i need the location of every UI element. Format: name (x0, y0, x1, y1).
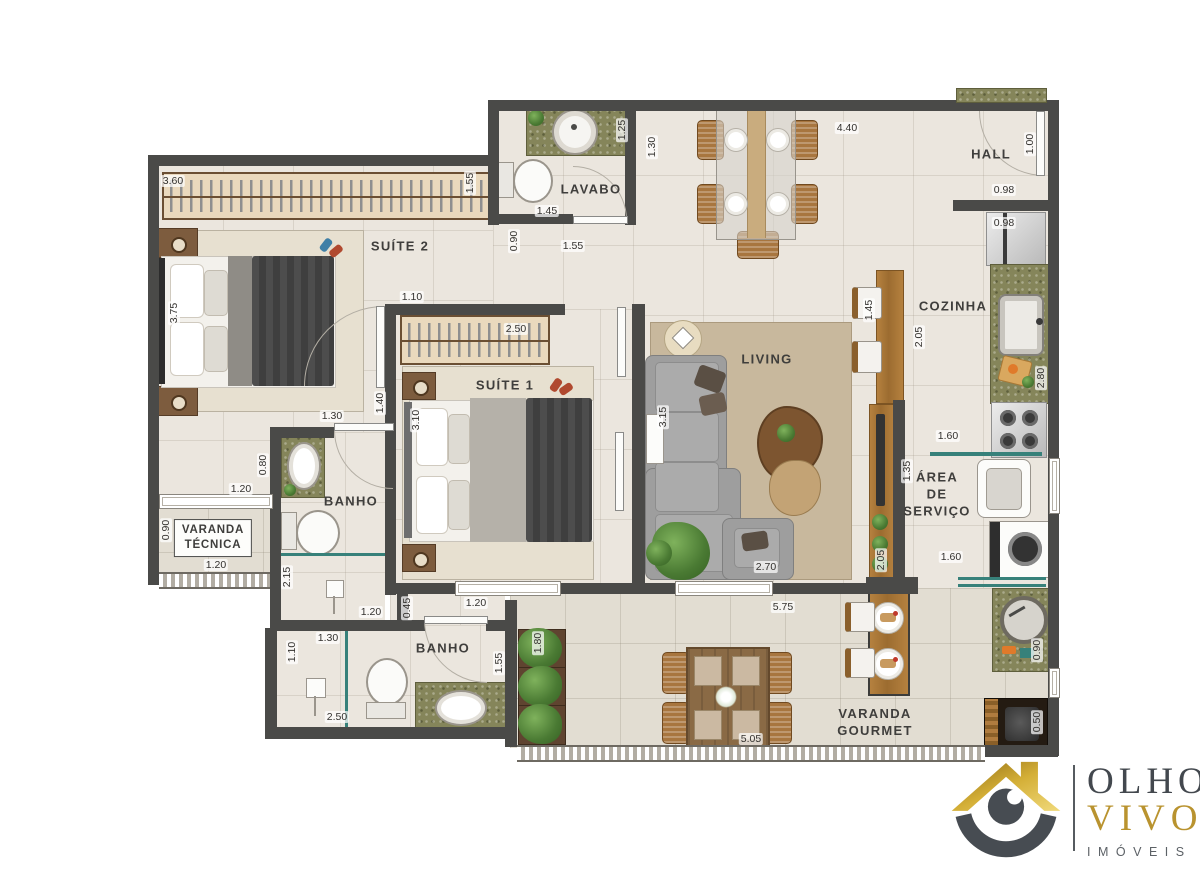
dimension-label: 0.98 (992, 184, 1016, 196)
dimension-label: 0.45 (401, 596, 413, 620)
dimension-label: 1.60 (936, 430, 960, 442)
dimension-label: 3.10 (410, 408, 422, 432)
dimension-label: 1.55 (561, 240, 585, 252)
dimension-label: 1.10 (400, 291, 424, 303)
room-label-varanda-gourmet: VARANDA GOURMET (837, 706, 913, 740)
dimension-label: 1.20 (464, 597, 488, 609)
dimension-label: 2.05 (913, 325, 925, 349)
dimension-label: 1.20 (229, 483, 253, 495)
brand-logo: OLHO VIVO.® IMÓVEIS (945, 745, 1195, 863)
dimension-label: 0.90 (1031, 638, 1043, 662)
house-eye-icon (947, 747, 1065, 862)
dimension-label: 1.45 (535, 205, 559, 217)
logo-divider (1073, 765, 1075, 851)
dimension-label: 1.40 (374, 391, 386, 415)
dimension-label: 2.50 (504, 323, 528, 335)
dimension-label: 2.05 (875, 548, 887, 572)
dimension-label: 2.15 (281, 565, 293, 589)
dimension-label: 1.30 (646, 135, 658, 159)
dimension-label: 1.30 (316, 632, 340, 644)
room-label-area-servico: ÁREA DE SERVIÇO (903, 470, 970, 521)
dimension-label: 0.98 (992, 217, 1016, 229)
dimension-label: 1.25 (616, 118, 628, 142)
logo-text-olho: OLHO (1087, 763, 1195, 800)
dimension-label: 2.80 (1035, 366, 1047, 390)
dimension-label: 0.80 (257, 453, 269, 477)
dimension-label: 3.60 (161, 175, 185, 187)
dimension-label: 1.60 (939, 551, 963, 563)
dimension-label: 0.90 (508, 229, 520, 253)
dimension-label: 1.80 (532, 631, 544, 655)
room-label-hall: HALL (971, 147, 1011, 164)
logo-text-vivo: VIVO.® (1087, 800, 1195, 839)
room-label-banho-suite1: BANHO (324, 494, 378, 511)
dimension-label: 3.75 (168, 301, 180, 325)
dimension-label: 0.50 (1031, 710, 1043, 734)
dimension-label: 1.10 (286, 640, 298, 664)
logo-text-imoveis: IMÓVEIS (1087, 845, 1195, 859)
room-label-suite1: SUÍTE 1 (476, 378, 534, 395)
room-label-cozinha: COZINHA (919, 299, 987, 316)
dimension-label: 5.05 (739, 733, 763, 745)
dimension-label: 1.55 (493, 651, 505, 675)
dimension-label: 1.45 (863, 298, 875, 322)
room-label-banho-suite2: BANHO (416, 641, 470, 658)
dimension-label: 1.35 (901, 459, 913, 483)
room-label-lavabo: LAVABO (561, 182, 622, 199)
dimension-label: 3.15 (657, 405, 669, 429)
dimension-label: 2.70 (754, 561, 778, 573)
dimension-label: 4.40 (835, 122, 859, 134)
floor-plan-canvas: SUÍTE 2SUÍTE 1LAVABOLIVINGCOZINHAHALLBAN… (0, 0, 1200, 869)
room-label-suite2: SUÍTE 2 (371, 239, 429, 256)
dimension-label: 1.55 (464, 171, 476, 195)
room-label-living: LIVING (741, 352, 792, 369)
dimension-label: 5.75 (771, 601, 795, 613)
dimension-label: 1.20 (359, 606, 383, 618)
dimension-label: 1.20 (204, 559, 228, 571)
labels-layer: SUÍTE 2SUÍTE 1LAVABOLIVINGCOZINHAHALLBAN… (0, 0, 1200, 869)
dimension-label: 2.50 (325, 711, 349, 723)
dimension-label: 0.90 (160, 518, 172, 542)
dimension-label: 1.30 (320, 410, 344, 422)
room-label-varanda-tecnica: VARANDA TÉCNICA (174, 519, 252, 557)
dimension-label: 1.00 (1024, 132, 1036, 156)
